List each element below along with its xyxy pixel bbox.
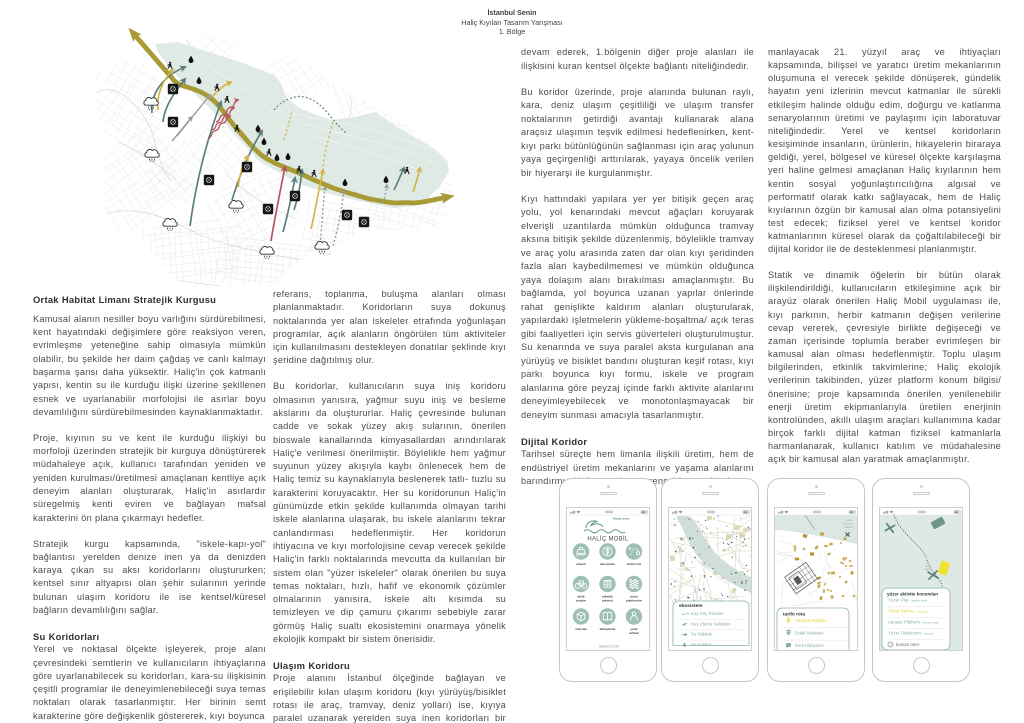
svg-text:ekosistem: ekosistem [679, 603, 702, 609]
svg-text:Yürüyüş Rotaları: Yürüyüş Rotaları [795, 618, 827, 623]
svg-text:S: S [889, 643, 891, 647]
svg-text:Kent Hikayeleri: Kent Hikayeleri [795, 643, 824, 648]
svg-text:İstanbul 2020: İstanbul 2020 [598, 644, 618, 649]
svg-text:Kuş İzleme Noktaları: Kuş İzleme Noktaları [691, 621, 731, 626]
svg-text:HALİÇ MOBİL: HALİÇ MOBİL [587, 536, 629, 543]
svg-text:Su Kalitesi: Su Kalitesi [691, 642, 711, 647]
svg-text:Su Habitatı: Su Habitatı [691, 632, 712, 637]
svg-text:kütüphane: kütüphane [599, 627, 615, 631]
svg-text:Lonca: Lonca [845, 518, 853, 522]
svg-text:takvimi: takvimi [602, 599, 613, 603]
svg-text:Odak Noktaları: Odak Noktaları [795, 631, 824, 636]
svg-text:yüzer aktivite konumları: yüzer aktivite konumları [887, 592, 938, 597]
svg-text:ulaşım: ulaşım [576, 562, 586, 566]
svg-text:Paylaş yaşa: Paylaş yaşa [612, 517, 629, 521]
svg-text:tarihi rota: tarihi rota [626, 562, 641, 566]
svg-text:Kuş Göç Rotaları: Kuş Göç Rotaları [691, 611, 724, 616]
svg-text:araçlar: araçlar [575, 599, 586, 603]
svg-text:platformlar: platformlar [625, 599, 642, 603]
svg-text:konum öner: konum öner [896, 642, 920, 647]
svg-text:rehberi: rehberi [628, 631, 639, 635]
svg-text:hab-lab: hab-lab [575, 627, 586, 631]
svg-text:Bornova: Bornova [843, 521, 853, 525]
svg-text:tarihi rota: tarihi rota [783, 612, 805, 618]
svg-text:şarkı: şarkı [924, 568, 930, 571]
svg-text:ekosistem: ekosistem [599, 562, 614, 566]
